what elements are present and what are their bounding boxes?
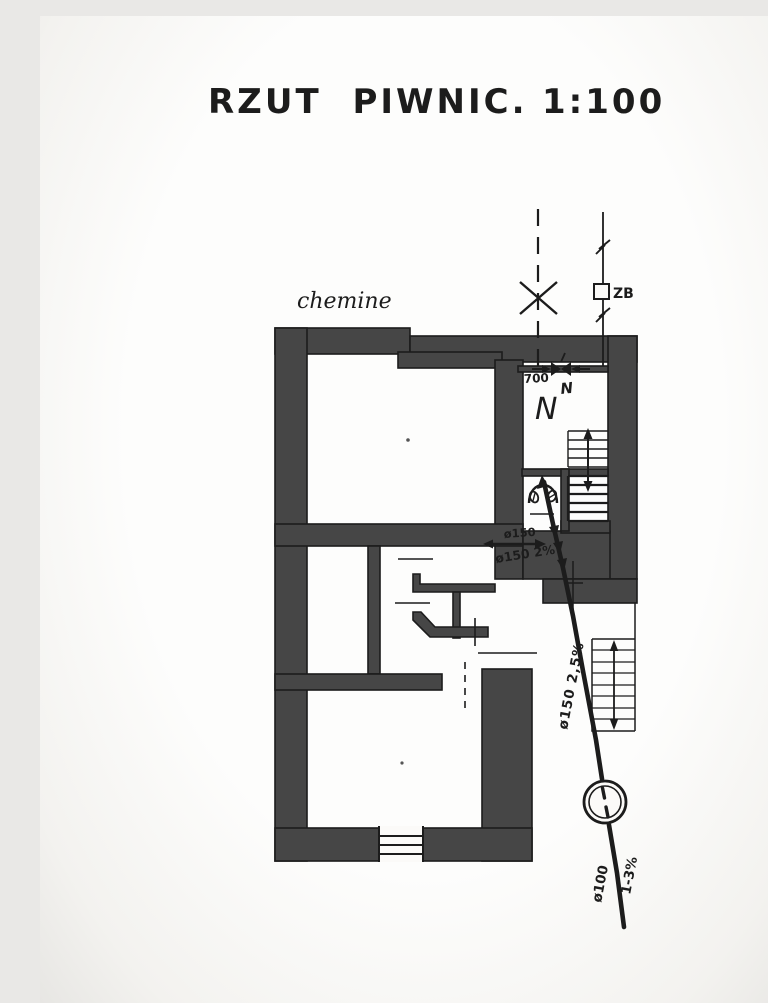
valve-note-label: N	[560, 379, 575, 398]
dimension-label: 700	[523, 371, 549, 386]
outlet-diameter-label: ø100	[589, 864, 612, 904]
direction-arrow-icon	[610, 640, 618, 651]
lower-horizontal-wall	[275, 674, 442, 690]
gate-valve-icon	[561, 362, 571, 376]
branch-diameter-label: ø150	[503, 525, 536, 541]
exterior-staircase	[592, 603, 635, 731]
bottom-entry-steps	[379, 826, 423, 862]
direction-arrow-icon	[584, 481, 593, 492]
pen-dot	[400, 761, 403, 764]
room-letter: N	[535, 392, 557, 427]
partition-room2-right	[368, 546, 380, 674]
gate-valve-icon	[551, 362, 561, 376]
chimney-label: chemine	[297, 289, 392, 314]
floor-plan-drawing: RZUT PIWNIC. 1:100	[40, 16, 768, 1003]
basement-plan-sheet: RZUT PIWNIC. 1:100	[40, 16, 768, 1003]
corridor-t-partition	[413, 574, 495, 592]
zb-device-label: ZB	[613, 286, 634, 302]
right-wall	[608, 336, 637, 579]
plan-scale: 1:100	[542, 82, 665, 122]
sheet-title: RZUT PIWNIC. 1:100	[208, 82, 665, 122]
zb-device-icon	[594, 284, 609, 299]
outlet-slope-label: 1-3%	[618, 855, 641, 896]
top-wall-notch	[398, 352, 502, 368]
inspection-chamber-icon	[584, 781, 626, 823]
stack-pipe-label: ø150 2,5%	[555, 641, 588, 731]
middle-horizontal-wall	[275, 524, 523, 546]
direction-arrow-icon	[610, 719, 618, 730]
corridor-chamfer-partition	[413, 612, 488, 637]
pen-dot	[406, 438, 410, 442]
left-wall	[275, 328, 307, 861]
direction-arrow-icon	[584, 428, 593, 439]
outer-and-inner-walls	[275, 328, 637, 861]
wc-fixture	[528, 485, 558, 514]
plan-title: RZUT PIWNIC.	[208, 82, 528, 122]
landing-top-wall	[543, 579, 637, 603]
